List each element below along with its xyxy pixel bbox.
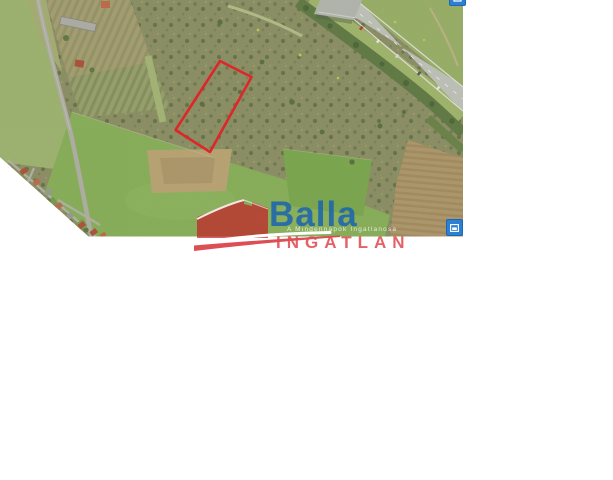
watermark-tagline: A Mindennapok Ingatlanosa xyxy=(287,226,397,233)
watermark-wordmark: INGATLAN xyxy=(276,234,411,251)
map-control-icon xyxy=(453,0,462,2)
map-control-button-bottom[interactable] xyxy=(446,219,463,236)
listing-photo-page: Balla A Mindennapok Ingatlanosa INGATLAN xyxy=(0,0,613,480)
expand-icon xyxy=(450,224,459,232)
map-control-button-top[interactable] xyxy=(449,0,466,6)
